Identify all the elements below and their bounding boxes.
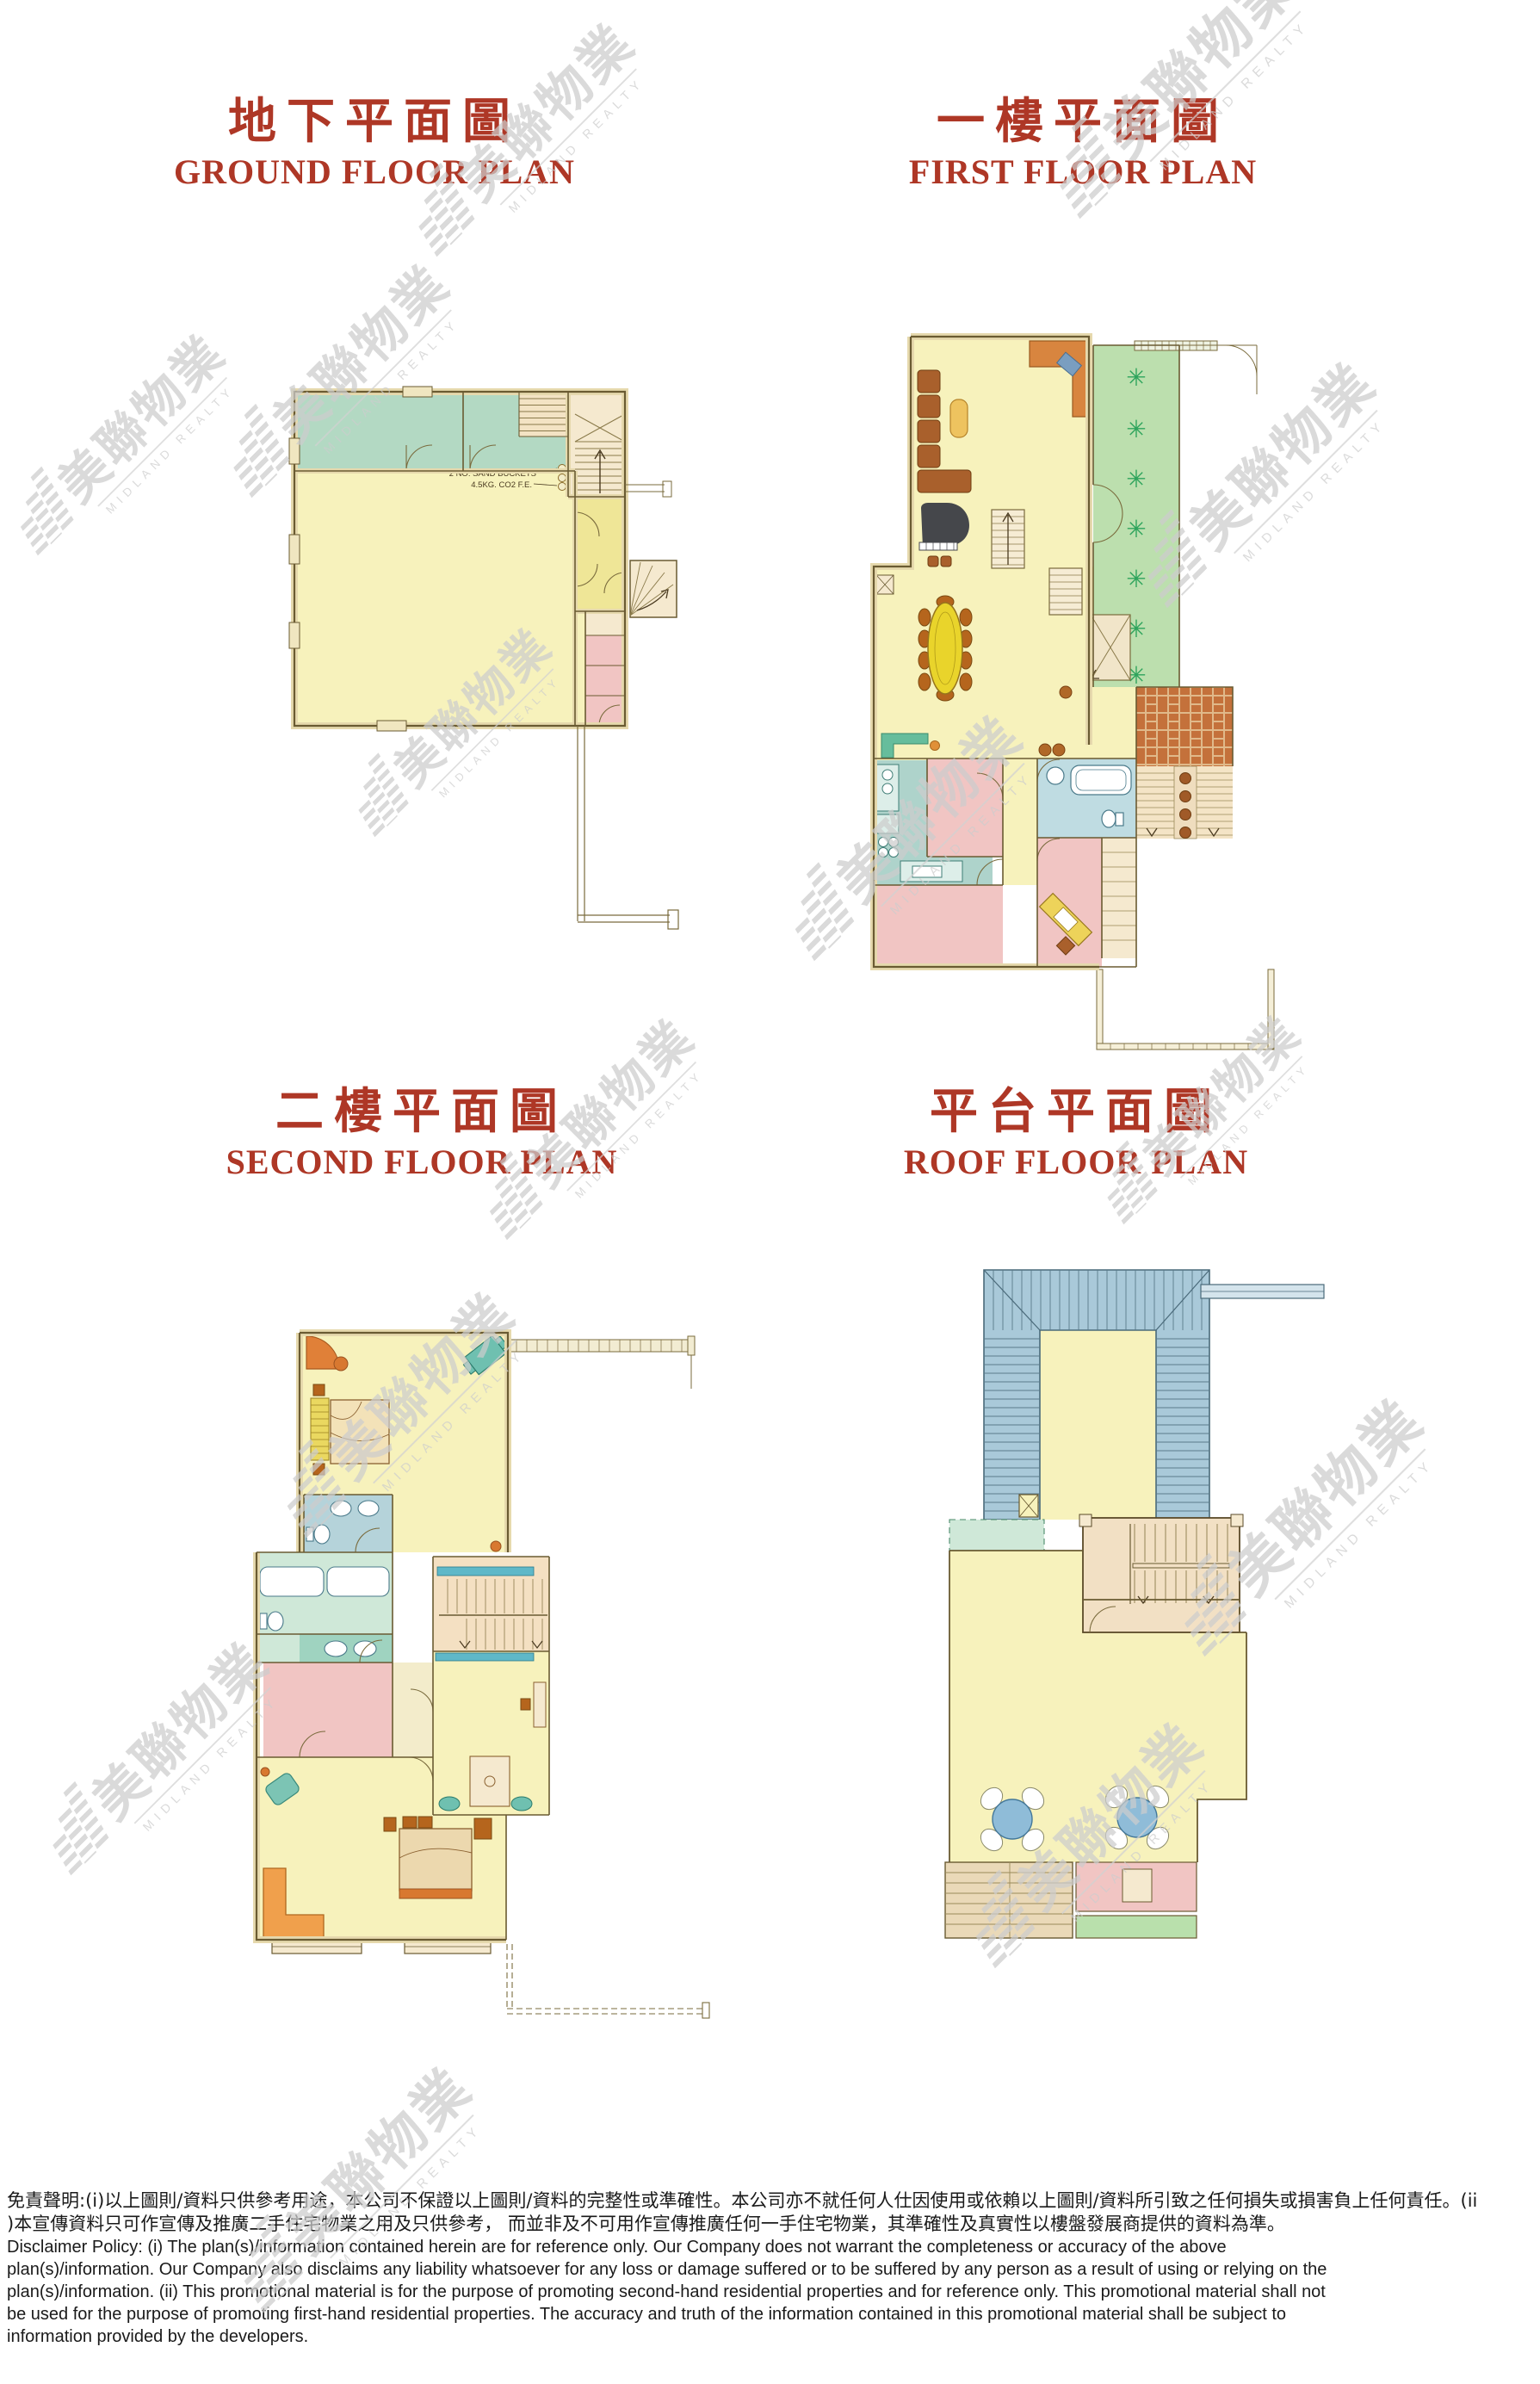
disclaimer-en-line: information provided by the developers. [7, 2325, 1537, 2348]
flower-pot [1053, 744, 1065, 756]
midland-logo-bars-icon [28, 1787, 115, 1874]
ground-floor-title-zh: 地下平面圖 [108, 96, 641, 150]
svg-text:✳: ✳ [1126, 465, 1146, 493]
roof-floor-title: 平台平面圖 ROOF FLOOR PLAN [809, 1087, 1343, 1181]
ground-floor-title-en: GROUND FLOOR PLAN [108, 153, 641, 191]
flower-pot [1039, 744, 1051, 756]
first-floor-title-en: FIRST FLOOR PLAN [816, 153, 1350, 191]
disclaimer-en-line: be used for the purpose of promoting fir… [7, 2303, 1537, 2325]
second-balcony-outline [507, 1944, 709, 2018]
co2-fe-label: 4.5KG. CO2 F.E. [471, 480, 532, 490]
roof-stairs [1079, 1514, 1243, 1632]
disclaimer-zh-line: )本宣傳資料只可作宣傳及推廣二手住宅物業之用及只供參考， 而並非及不可用作宣傳推… [7, 2213, 1537, 2236]
ground-entry-stair [625, 481, 677, 617]
midland-watermark: 美聯物業 MIDLAND REALTY [0, 291, 278, 571]
roof-floor-title-zh: 平台平面圖 [809, 1087, 1343, 1140]
disclaimer-en-line: plan(s)/information. Our Company also di… [7, 2258, 1537, 2281]
svg-text:✳: ✳ [1126, 363, 1146, 392]
first-balcony-railing [1097, 969, 1274, 1050]
ground-floor-plan: 2 NO. SAND BUCKETS 4.5KG. CO2 F.E. [275, 366, 680, 960]
flower-pot [1060, 686, 1072, 698]
coffee-table [950, 399, 968, 437]
ground-floor-title: 地下平面圖 GROUND FLOOR PLAN [108, 96, 641, 191]
disclaimer-en-line: Disclaimer Policy: (i) The plan(s)/infor… [7, 2236, 1537, 2258]
second-floor-title: 二樓平面圖 SECOND FLOOR PLAN [155, 1087, 689, 1181]
midland-logo-bars-icon [0, 472, 80, 554]
second-floor-title-zh: 二樓平面圖 [155, 1087, 689, 1140]
disclaimer-zh-line: 免責聲明:(i)以上圖則/資料只供參考用途，本公司不保證以上圖則/資料的完整性或… [7, 2189, 1537, 2213]
roof-floor-plan [911, 1221, 1410, 1953]
roof-strip [1201, 1285, 1324, 1298]
svg-text:✳: ✳ [1126, 415, 1146, 443]
decking [945, 1862, 1073, 1938]
ground-bottom-extension [578, 726, 678, 929]
roof-void [1040, 1330, 1156, 1520]
watermark-zh-text: 美聯物業 [52, 328, 234, 511]
first-floor-title-zh: 一樓平面圖 [816, 96, 1350, 150]
svg-text:✳: ✳ [1126, 565, 1146, 593]
disclaimer-block: 免責聲明:(i)以上圖則/資料只供參考用途，本公司不保證以上圖則/資料的完整性或… [7, 2189, 1537, 2348]
svg-text:✳: ✳ [1126, 515, 1146, 543]
second-floor-title-en: SECOND FLOOR PLAN [155, 1143, 689, 1181]
planter-strip [1076, 1862, 1197, 1938]
second-balcony-rail-top [508, 1336, 695, 1389]
floor-plan-sheet: 地下平面圖 GROUND FLOOR PLAN 一樓平面圖 FIRST FLOO… [0, 0, 1540, 2384]
watermark-en-text: MIDLAND REALTY [97, 377, 239, 519]
roof-floor-title-en: ROOF FLOOR PLAN [809, 1143, 1343, 1181]
side-table [931, 741, 940, 751]
first-floor-title: 一樓平面圖 FIRST FLOOR PLAN [816, 96, 1350, 191]
disclaimer-en-line: plan(s)/information. (ii) This promotion… [7, 2281, 1537, 2303]
second-floor-plan [248, 1264, 713, 2030]
planter-patch [949, 1520, 1044, 1551]
first-floor-plan: ✳✳✳ ✳✳✳ ✳ [844, 317, 1377, 1092]
